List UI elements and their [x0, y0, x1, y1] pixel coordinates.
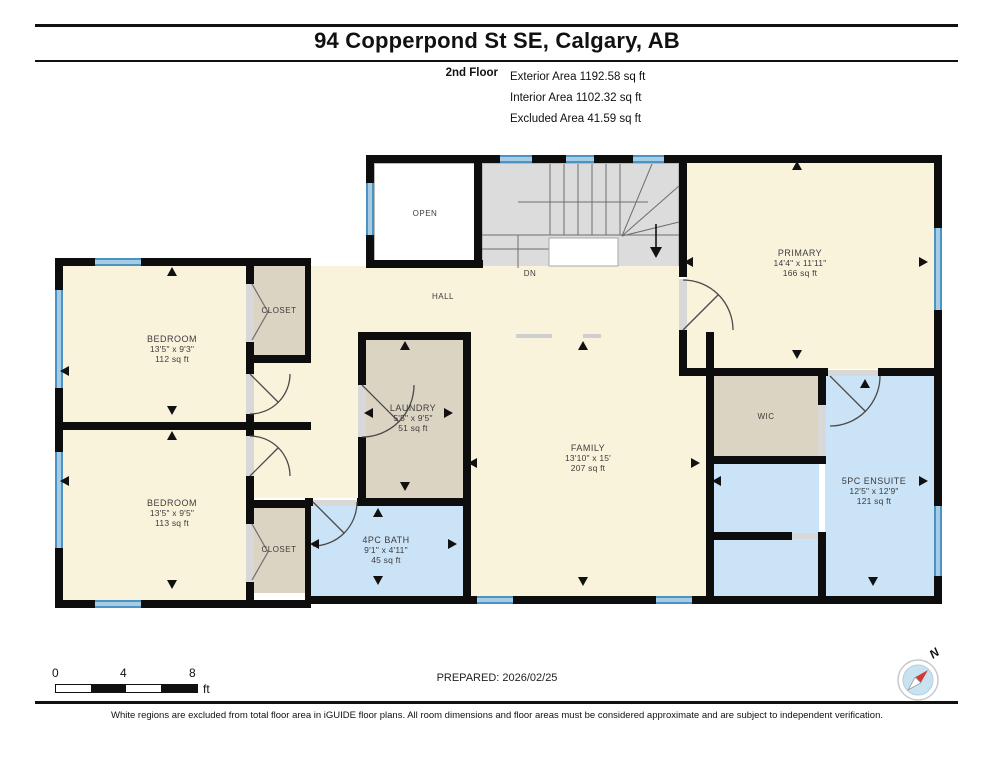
label-closet-bottom: CLOSET — [249, 545, 309, 554]
label-laundry: LAUNDRY5'5" x 9'5"51 sq ft — [363, 403, 463, 433]
label-bedroom-top: BEDROOM13'5" x 9'3"112 sq ft — [92, 334, 252, 364]
floor-plan-page: 94 Copperpond St SE, Calgary, AB 2nd Flo… — [0, 0, 994, 768]
label-bedroom-bottom: BEDROOM13'5" x 9'5"113 sq ft — [92, 498, 252, 528]
compass-icon: N — [890, 646, 950, 708]
footer-rule — [35, 701, 958, 704]
label-bath: 4PC BATH9'1" x 4'11"45 sq ft — [316, 535, 456, 565]
label-wic: WIC — [736, 412, 796, 421]
label-hall: HALL — [393, 292, 493, 301]
stair-landing — [549, 238, 618, 266]
label-open: OPEN — [374, 209, 476, 218]
label-closet-top: CLOSET — [249, 306, 309, 315]
compass-north-label: N — [927, 646, 942, 661]
scale-unit: ft — [203, 682, 210, 696]
plan-annotations — [0, 0, 994, 768]
label-primary: PRIMARY14'4" x 11'11"166 sq ft — [700, 248, 900, 278]
disclaimer-text: White regions are excluded from total fl… — [0, 710, 994, 721]
label-dn: DN — [505, 269, 555, 278]
label-family: FAMILY13'10" x 15'207 sq ft — [508, 443, 668, 473]
scale-bar — [55, 684, 198, 693]
bifold-doors — [252, 284, 268, 580]
label-ensuite: 5PC ENSUITE12'5" x 12'9"121 sq ft — [794, 476, 954, 506]
prepared-date: PREPARED: 2026/02/25 — [0, 672, 994, 684]
